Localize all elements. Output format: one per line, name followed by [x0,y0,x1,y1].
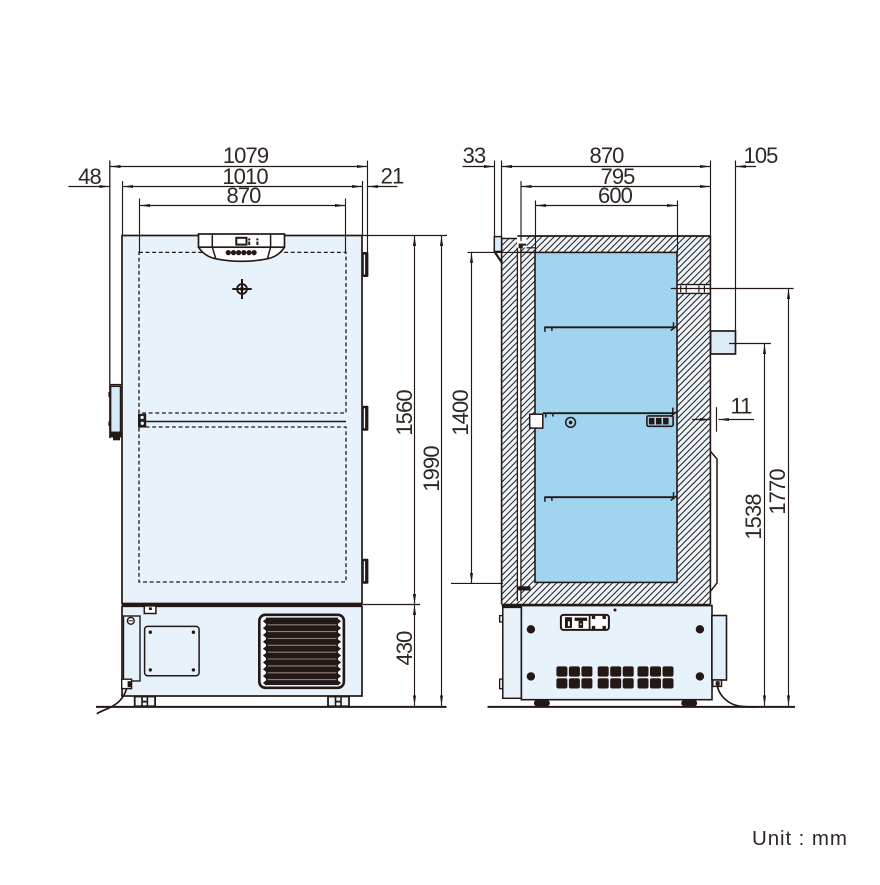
svg-text:1560: 1560 [392,390,417,436]
svg-text:870: 870 [226,183,261,208]
svg-text:1400: 1400 [448,390,473,436]
svg-text:1770: 1770 [765,469,790,515]
svg-text:21: 21 [381,164,404,189]
svg-text:105: 105 [743,143,778,168]
svg-text:1990: 1990 [419,446,444,492]
svg-text:430: 430 [392,631,417,666]
svg-text:48: 48 [78,164,101,189]
svg-text:Unit : mm: Unit : mm [752,827,848,850]
svg-text:600: 600 [598,183,633,208]
svg-text:1538: 1538 [741,494,766,540]
svg-text:33: 33 [463,143,486,168]
svg-text:11: 11 [730,394,752,419]
